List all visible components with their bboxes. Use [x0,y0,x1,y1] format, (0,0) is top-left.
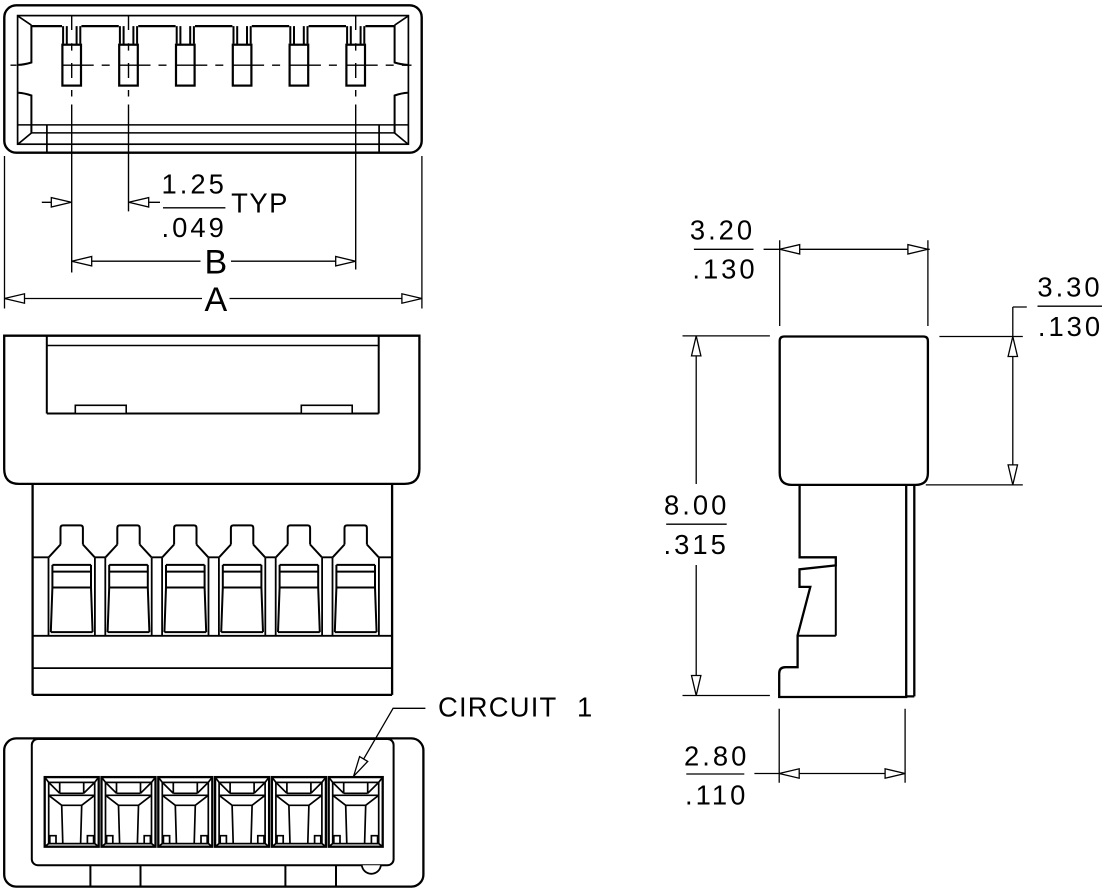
svg-text:.049: .049 [162,212,227,243]
svg-text:A: A [204,281,227,319]
svg-text:.110: .110 [685,779,748,810]
svg-text:3.30: 3.30 [1037,271,1102,302]
svg-text:1: 1 [577,692,592,723]
svg-text:.130: .130 [692,253,757,284]
svg-text:3.20: 3.20 [690,215,755,246]
svg-text:1.25: 1.25 [162,169,227,200]
svg-text:.130: .130 [1038,311,1103,342]
svg-text:8.00: 8.00 [664,490,729,521]
svg-text:.315: .315 [664,529,729,560]
svg-text:2.80: 2.80 [684,740,749,771]
svg-text:B: B [204,244,227,282]
svg-text:CIRCUIT: CIRCUIT [438,692,557,723]
svg-text:TYP: TYP [231,188,289,219]
